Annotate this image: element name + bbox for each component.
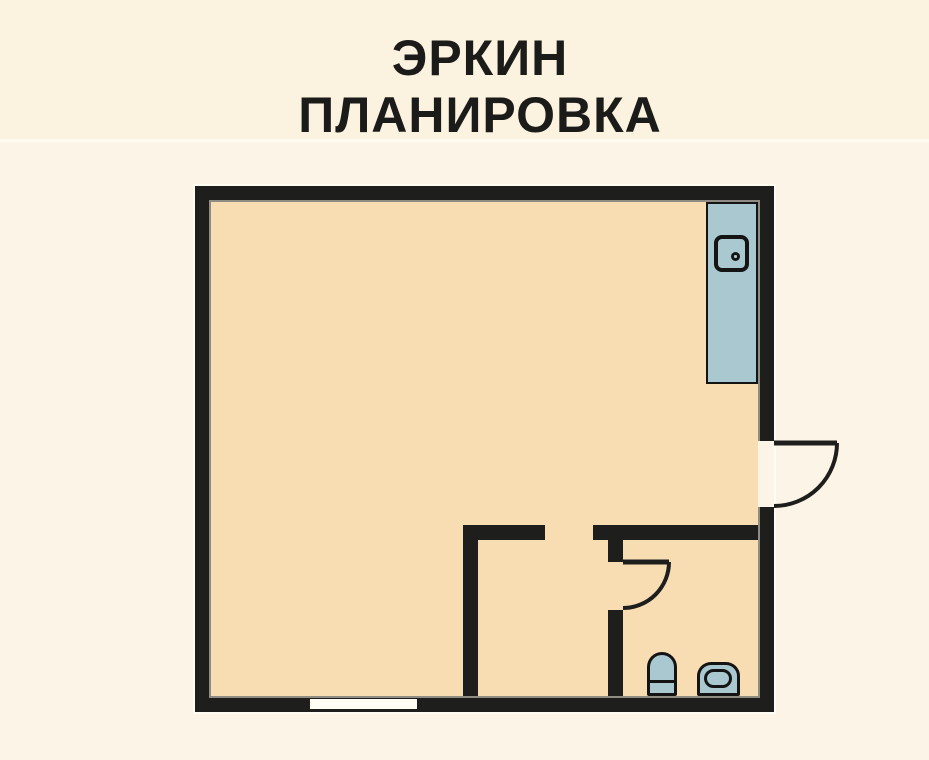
floor-area [211,202,758,696]
header: ЭРКИН ПЛАНИРОВКА [0,0,929,139]
faucet-dot-icon [731,252,740,261]
floor-plan-poster: ЭРКИН ПЛАНИРОВКА [0,0,929,760]
window [310,699,417,709]
bathroom-wall-left-lower [608,610,623,696]
closet-partition-wall-left [463,525,478,696]
kitchen-counter [706,202,758,384]
floor-plan [195,186,774,712]
header-divider-line [0,139,929,142]
entrance-door-arc [774,443,837,506]
title-line-2: ПЛАНИРОВКА [31,87,929,144]
sink-basin-icon [704,669,732,688]
counter-sink-icon [714,235,749,272]
entrance-doorway-opening [758,441,774,507]
bathroom-wall-top [593,525,758,540]
sink-icon [697,662,740,696]
toilet-icon [647,652,677,696]
title-line-1: ЭРКИН [31,30,929,87]
bathroom-wall-left-upper [608,540,623,562]
toilet-tank-line [649,680,675,683]
page-title: ЭРКИН ПЛАНИРОВКА [31,30,929,144]
